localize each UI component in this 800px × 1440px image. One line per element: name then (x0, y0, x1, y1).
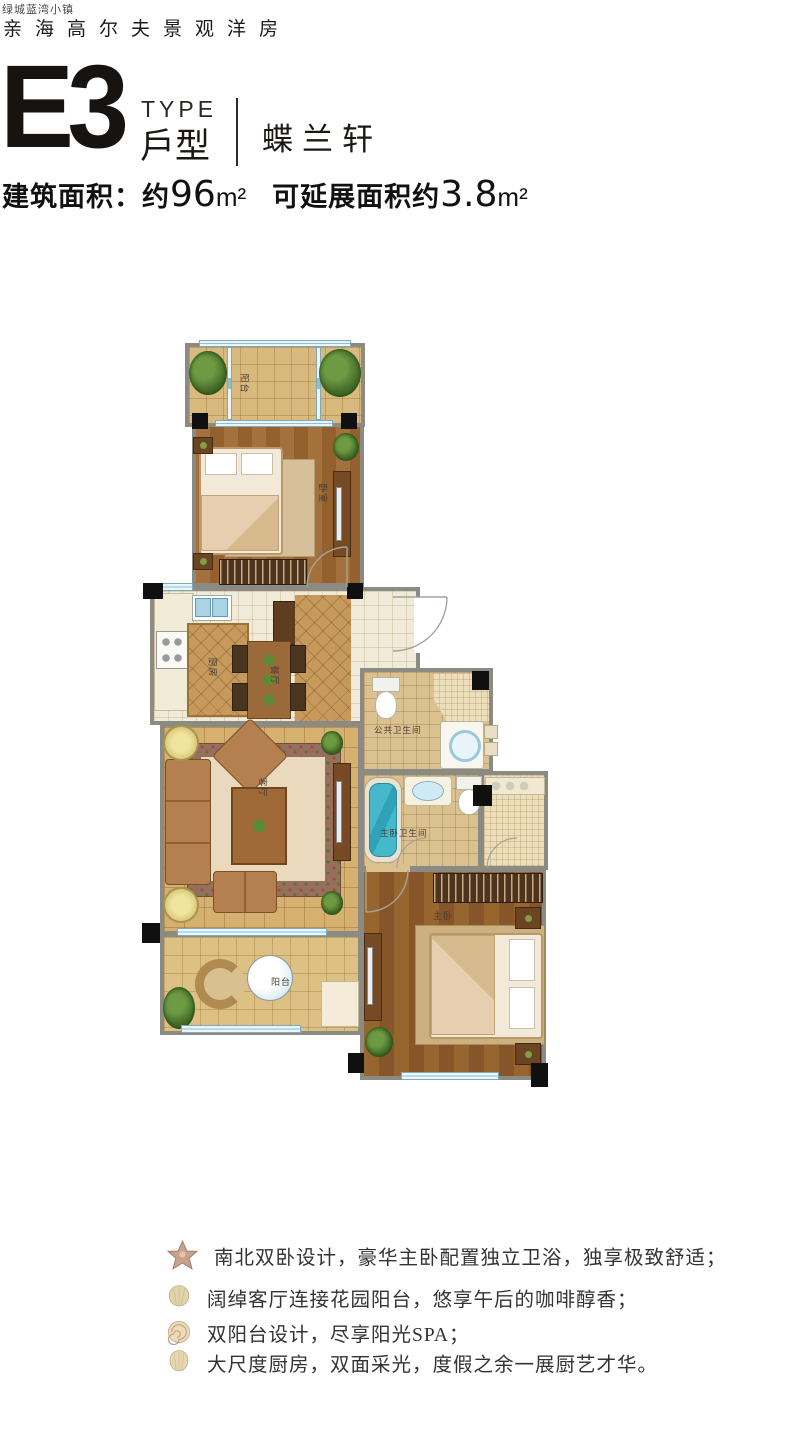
door-arcs (135, 335, 550, 1095)
area-label-2: 可延展面积约 (272, 175, 440, 214)
clam-shell-icon (166, 1284, 192, 1310)
area-unit-1: m² (216, 182, 246, 213)
area-value-2: 3.8 (440, 174, 497, 215)
feature-item: 阔绰客厅连接花园阳台，悠享午后的咖啡醇香； (166, 1280, 638, 1314)
feature-text: 大尺度厨房，双面采光，度假之余一展厨艺才华。 (207, 1348, 658, 1377)
area-label-1: 建筑面积：约 (2, 175, 170, 214)
poster-page: 绿城蓝湾小镇 亲海高尔夫景观洋房 E3 TYPE 戶型 蝶兰轩 建筑面积：约 9… (0, 0, 800, 1440)
brand-main-text: 亲海高尔夫景观洋房 (3, 14, 291, 41)
scallop-shell-icon (166, 1349, 192, 1375)
area-unit-2: m² (497, 182, 527, 213)
vertical-divider (236, 98, 238, 166)
feature-item: 南北双卧设计，豪华主卧配置独立卫浴，独享极致舒适； (166, 1238, 727, 1272)
spiral-shell-icon (166, 1319, 192, 1345)
floor-plan: 阳台 卧室 厨房 餐厅 (135, 335, 550, 1095)
feature-item: 双阳台设计，尽享阳光SPA； (166, 1315, 469, 1349)
unit-name-text: 蝶兰轩 (262, 114, 382, 159)
feature-item: 大尺度厨房，双面采光，度假之余一展厨艺才华。 (166, 1345, 658, 1379)
feature-text: 双阳台设计，尽享阳光SPA； (207, 1318, 469, 1347)
unit-type-code: E3 (0, 48, 123, 166)
feature-text: 南北双卧设计，豪华主卧配置独立卫浴，独享极致舒适； (214, 1241, 727, 1270)
starfish-icon (166, 1239, 199, 1272)
unit-type-cn-label: 戶型 (140, 118, 210, 169)
area-info-line: 建筑面积：约 96 m² 可延展面积约 3.8 m² (2, 174, 528, 215)
feature-text: 阔绰客厅连接花园阳台，悠享午后的咖啡醇香； (207, 1283, 638, 1312)
area-value-1: 96 (170, 174, 216, 215)
